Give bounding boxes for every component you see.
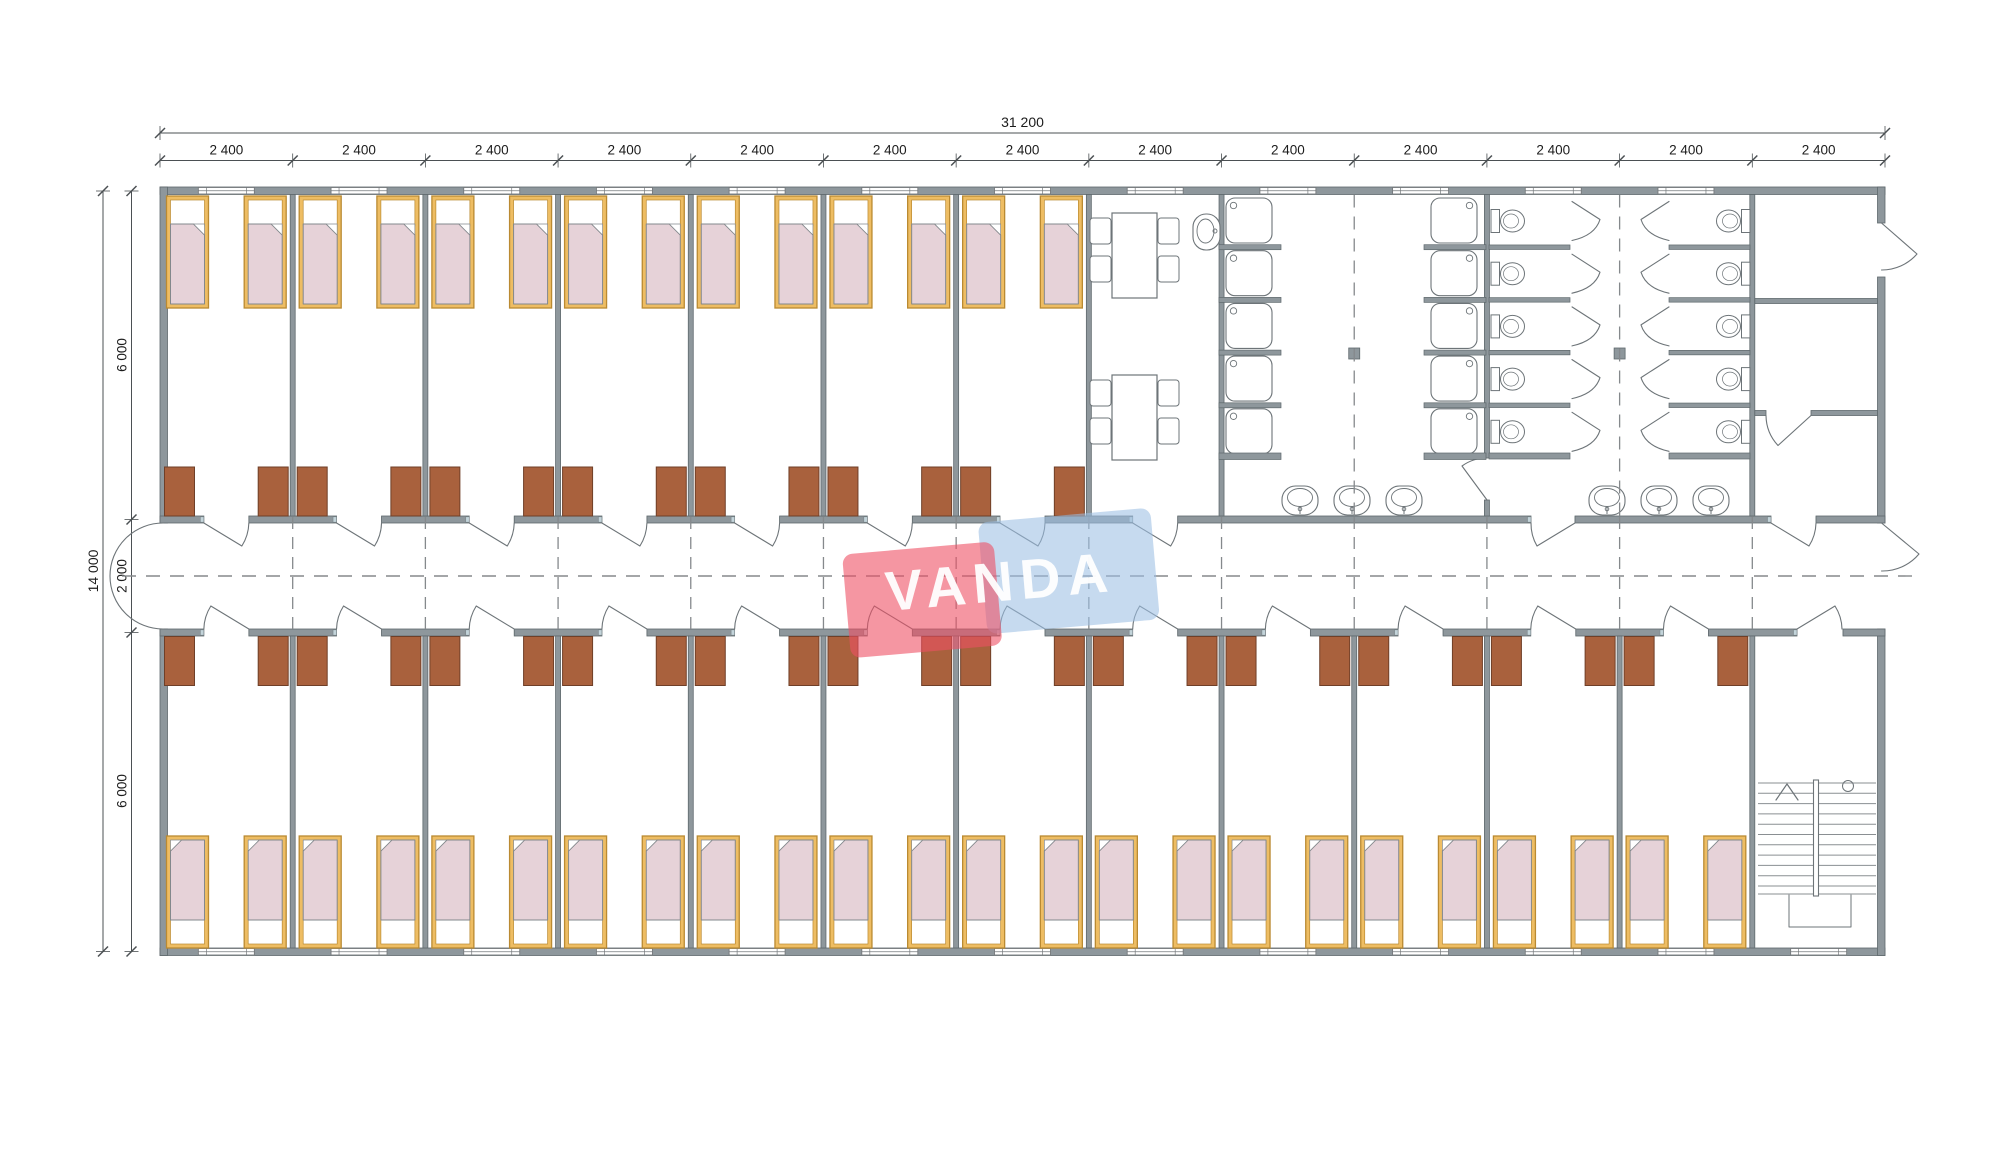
shower-tray [1226, 409, 1272, 454]
shower-partition [1219, 245, 1281, 250]
bed-blanket [436, 224, 470, 304]
wardrobe [563, 637, 593, 686]
door-swing [735, 523, 780, 546]
bed-blanket [514, 224, 548, 304]
bed-blanket [1630, 840, 1664, 920]
bed-pillow [779, 920, 813, 944]
dining-table [1112, 213, 1157, 298]
bed-blanket [646, 224, 680, 304]
toilet-bowl [1717, 210, 1741, 232]
dim-label-module: 2 400 [1138, 143, 1172, 158]
wardrobe [656, 467, 686, 516]
door-jamb [598, 517, 602, 522]
bed-pillow [1044, 200, 1078, 226]
door-jamb [1527, 630, 1531, 635]
bed-pillow [569, 920, 603, 944]
bed-blanket [569, 840, 603, 920]
shower-partition [1424, 403, 1486, 408]
wall-partition-top [423, 195, 428, 517]
bed-pillow [171, 920, 205, 944]
toilet-bowl [1717, 421, 1741, 443]
chair [1158, 218, 1179, 244]
wall-partition-top [688, 195, 693, 517]
toilet-tank [1491, 262, 1500, 285]
bed-blanket [1575, 840, 1609, 920]
wall-corridor [249, 629, 337, 636]
door-jamb [1768, 517, 1772, 522]
shower-partition [1424, 245, 1486, 250]
dim-label-top-band: 6 000 [115, 338, 130, 372]
door-jamb [1395, 630, 1399, 635]
bed-blanket [1232, 840, 1266, 920]
wall-exterior-right [1878, 277, 1886, 523]
toilet-bowl [1501, 421, 1525, 443]
bed-pillow [1575, 920, 1609, 944]
wardrobe [1359, 637, 1389, 686]
shower-tray [1226, 356, 1272, 401]
door-swing [1766, 416, 1811, 446]
door-jamb [731, 630, 735, 635]
stall-partition [1669, 453, 1750, 459]
bed-blanket [912, 840, 946, 920]
stall-partition [1489, 298, 1570, 303]
wall-partition-bottom [1750, 636, 1755, 948]
chair [1090, 380, 1111, 406]
wall-corridor [1178, 629, 1266, 636]
bed-pillow [967, 200, 1001, 226]
chair [1158, 418, 1179, 444]
wall-partition-bottom [954, 636, 959, 948]
bed-pillow [381, 200, 415, 226]
wardrobe [1054, 637, 1084, 686]
toilet-tank [1742, 420, 1751, 443]
stair-handrail-post [1843, 781, 1854, 792]
bed-blanket [779, 840, 813, 920]
shower-tray [1431, 198, 1477, 243]
wardrobe [297, 637, 327, 686]
wardrobe [258, 637, 288, 686]
bed-blanket [1044, 840, 1078, 920]
wardrobe [695, 467, 725, 516]
wall-partition-top [954, 195, 959, 517]
bed-pillow [1708, 920, 1742, 944]
shower-partition [1424, 453, 1486, 460]
wall-corridor [647, 629, 735, 636]
door-jamb [1794, 630, 1798, 635]
bed-pillow [912, 920, 946, 944]
bed-blanket [1177, 840, 1211, 920]
stall-door-swing [1572, 412, 1600, 451]
wardrobe [1320, 637, 1350, 686]
bed-blanket [248, 224, 282, 304]
bed-pillow [646, 920, 680, 944]
wardrobe [1452, 637, 1482, 686]
door-jamb [1129, 630, 1133, 635]
toilet-bowl [1717, 263, 1741, 285]
toilet-tank [1742, 210, 1751, 233]
toilet-bowl [1501, 210, 1525, 232]
wall-corridor [160, 516, 204, 523]
toilet-tank [1491, 420, 1500, 443]
stall-door-swing [1572, 202, 1600, 241]
wall-exterior-right [1878, 629, 1886, 956]
dim-label-module: 2 400 [1536, 143, 1570, 158]
wall-corridor [1843, 629, 1885, 636]
shower-tray [1226, 198, 1272, 243]
wall-partition-bottom [1352, 636, 1357, 948]
wardrobe [391, 637, 421, 686]
shower-tray [1431, 356, 1477, 401]
door-jamb [333, 630, 337, 635]
stall-door-swing [1572, 254, 1600, 293]
bed-pillow [779, 200, 813, 226]
wall-partition-bottom [1086, 636, 1091, 948]
wardrobe [828, 467, 858, 516]
bed-blanket [1365, 840, 1399, 920]
chair [1158, 380, 1179, 406]
wardrobe [1624, 637, 1654, 686]
door-swing [1398, 606, 1443, 629]
wardrobe [1187, 637, 1217, 686]
bed-pillow [303, 200, 337, 226]
bed-pillow [303, 920, 337, 944]
stall-partition [1669, 350, 1750, 355]
shower-tray [1431, 303, 1477, 348]
stall-door-swing [1641, 202, 1669, 241]
chair [1090, 418, 1111, 444]
stair-handrail [1814, 780, 1819, 896]
wall-corridor [1575, 516, 1771, 523]
toilet-tank [1491, 368, 1500, 391]
bed-blanket [834, 840, 868, 920]
wall-partition-top [821, 195, 826, 517]
wall-partition-top [290, 195, 295, 517]
wall-room-divider [1755, 411, 1766, 416]
wall-partition-bottom [556, 636, 561, 948]
wardrobe [430, 637, 460, 686]
bed-pillow [701, 920, 735, 944]
wall-corridor [1443, 629, 1531, 636]
wardrobe [1718, 637, 1748, 686]
stall-door-swing [1572, 307, 1600, 346]
bed-blanket [967, 224, 1001, 304]
wall-partition-bottom [1484, 636, 1489, 948]
bed-blanket [1310, 840, 1344, 920]
shower-partition [1424, 297, 1486, 302]
door-jamb [200, 517, 204, 522]
wall-corridor [514, 629, 602, 636]
shower-partition [1219, 453, 1281, 460]
bed-blanket [1099, 840, 1133, 920]
stall-door-swing [1641, 412, 1669, 451]
door-swing [1462, 458, 1487, 500]
door-swing [1771, 523, 1816, 546]
toilet-bowl [1501, 315, 1525, 337]
door-jamb [1262, 630, 1266, 635]
wall-corridor [1816, 516, 1885, 523]
bed-blanket [834, 224, 868, 304]
wall-partition-bottom [290, 636, 295, 948]
door-swing [602, 523, 647, 546]
wardrobe [165, 467, 195, 516]
bed-pillow [646, 200, 680, 226]
chair [1090, 256, 1111, 282]
bed-blanket [779, 224, 813, 304]
shower-partition [1219, 350, 1281, 355]
bed-pillow [171, 200, 205, 226]
stall-partition [1669, 298, 1750, 303]
bed-blanket [967, 840, 1001, 920]
wardrobe [1585, 637, 1615, 686]
door-jamb [466, 517, 470, 522]
toilet-bowl [1717, 315, 1741, 337]
dim-label-module: 2 400 [1802, 143, 1836, 158]
wall-partition-bottom [1219, 636, 1224, 948]
toilet-tank [1742, 368, 1751, 391]
wardrobe [297, 467, 327, 516]
door-swing [602, 606, 647, 629]
bed-blanket [912, 224, 946, 304]
dim-label-total-height: 14 000 [85, 549, 101, 592]
toilet-bowl [1501, 368, 1525, 390]
wardrobe [656, 637, 686, 686]
dim-label-module: 2 400 [475, 143, 509, 158]
stair-lower-flight-outline [1789, 895, 1851, 927]
stall-partition [1489, 403, 1570, 408]
bed-blanket [1497, 840, 1531, 920]
bed-pillow [834, 920, 868, 944]
bed-pillow [1177, 920, 1211, 944]
wardrobe [695, 637, 725, 686]
wardrobe [922, 467, 952, 516]
bed-pillow [514, 200, 548, 226]
bed-pillow [701, 200, 735, 226]
bed-blanket [303, 840, 337, 920]
door-jamb [864, 517, 868, 522]
floorplan-canvas: 31 2002 4002 4002 4002 4002 4002 4002 40… [0, 0, 2000, 1164]
chair [1158, 256, 1179, 282]
door-swing [204, 523, 249, 546]
door-swing [1663, 606, 1708, 629]
bed-pillow [1365, 920, 1399, 944]
wall-room-divider [1755, 299, 1878, 304]
bed-blanket [171, 224, 205, 304]
wardrobe [165, 637, 195, 686]
toilet-bowl [1501, 263, 1525, 285]
shower-tray [1431, 409, 1477, 454]
bed-blanket [381, 840, 415, 920]
bed-pillow [967, 920, 1001, 944]
door-swing [337, 606, 382, 629]
dim-label-module: 2 400 [342, 143, 376, 158]
wardrobe [1093, 637, 1123, 686]
wall-corridor [382, 629, 470, 636]
dining-table [1112, 375, 1157, 460]
bed-pillow [1232, 920, 1266, 944]
wall-exterior-right [1878, 187, 1886, 223]
bed-blanket [381, 224, 415, 304]
door-jamb [333, 517, 337, 522]
wall-partition-top [556, 195, 561, 517]
bed-pillow [436, 920, 470, 944]
bed-blanket [303, 224, 337, 304]
wardrobe [524, 467, 554, 516]
wardrobe [1491, 637, 1521, 686]
bed-pillow [381, 920, 415, 944]
bed-pillow [248, 920, 282, 944]
stall-partition [1489, 350, 1570, 355]
wardrobe [1226, 637, 1256, 686]
bed-pillow [569, 200, 603, 226]
door-swing [1797, 606, 1842, 629]
bed-blanket [1442, 840, 1476, 920]
bed-pillow [248, 200, 282, 226]
bed-blanket [701, 224, 735, 304]
door-swing [469, 606, 514, 629]
wall-partition-bottom [688, 636, 693, 948]
door-swing [735, 606, 780, 629]
wall-partition-top [1750, 195, 1755, 517]
door-jamb [731, 517, 735, 522]
wardrobe [430, 467, 460, 516]
stall-partition [1489, 453, 1570, 459]
shower-partition [1219, 403, 1281, 408]
door-swing [1882, 523, 1920, 571]
door-jamb [1528, 517, 1532, 522]
wardrobe [563, 467, 593, 516]
wall-corridor [1045, 629, 1133, 636]
toilet-tank [1742, 315, 1751, 338]
door-swing [1882, 223, 1918, 270]
bed-blanket [569, 224, 603, 304]
door-swing [1531, 606, 1576, 629]
dim-label-module: 2 400 [873, 143, 907, 158]
wardrobe [258, 467, 288, 516]
bed-blanket [248, 840, 282, 920]
stair-direction-arrow [1776, 784, 1798, 800]
door-jamb [200, 630, 204, 635]
wardrobe [1054, 467, 1084, 516]
bed-pillow [834, 200, 868, 226]
bed-blanket [436, 840, 470, 920]
bed-blanket [1708, 840, 1742, 920]
wardrobe [961, 467, 991, 516]
stall-door-swing [1641, 254, 1669, 293]
floorplan-drawing: 31 2002 4002 4002 4002 4002 4002 4002 40… [0, 0, 2000, 1164]
bed-blanket [701, 840, 735, 920]
shower-tray [1226, 303, 1272, 348]
bed-pillow [514, 920, 548, 944]
stall-door-swing [1572, 360, 1600, 399]
bed-pillow [1497, 920, 1531, 944]
wall-partition-top [1484, 500, 1489, 516]
bed-blanket [646, 840, 680, 920]
door-swing [204, 606, 249, 629]
dim-label-module: 2 400 [1006, 143, 1040, 158]
stall-door-swing [1641, 360, 1669, 399]
bed-pillow [1442, 920, 1476, 944]
toilet-tank [1742, 262, 1751, 285]
shower-partition [1424, 350, 1486, 355]
bed-pillow [436, 200, 470, 226]
wall-corridor [160, 629, 204, 636]
stall-partition [1489, 245, 1570, 250]
dim-label-bottom-band: 6 000 [115, 774, 130, 808]
bed-pillow [1099, 920, 1133, 944]
door-swing [337, 523, 382, 546]
door-swing [469, 523, 514, 546]
door-jamb [466, 630, 470, 635]
bed-blanket [171, 840, 205, 920]
wardrobe [789, 467, 819, 516]
wall-partition-bottom [1617, 636, 1622, 948]
chair [1090, 218, 1111, 244]
stall-partition [1669, 403, 1750, 408]
bed-pillow [912, 200, 946, 226]
shower-tray [1431, 251, 1477, 296]
shower-tray [1226, 251, 1272, 296]
door-swing [1531, 523, 1575, 546]
bed-pillow [1630, 920, 1664, 944]
bed-pillow [1044, 920, 1078, 944]
wall-corridor [1708, 629, 1797, 636]
wall-partition-top [1484, 195, 1489, 459]
toilet-bowl [1717, 368, 1741, 390]
door-jamb [598, 630, 602, 635]
dim-label-module: 2 400 [209, 143, 243, 158]
wardrobe [524, 637, 554, 686]
shower-partition [1219, 297, 1281, 302]
dim-label-module: 2 400 [608, 143, 642, 158]
dim-label-total-width: 31 200 [1001, 114, 1044, 130]
wall-partition-bottom [821, 636, 826, 948]
stall-partition [1669, 245, 1750, 250]
door-swing [1265, 606, 1310, 629]
stall-door-swing [1641, 307, 1669, 346]
bed-pillow [1310, 920, 1344, 944]
dim-label-module: 2 400 [1404, 143, 1438, 158]
dim-label-module: 2 400 [1271, 143, 1305, 158]
toilet-tank [1491, 210, 1500, 233]
wardrobe [789, 637, 819, 686]
door-swing [867, 523, 912, 546]
door-jamb [1660, 630, 1664, 635]
wall-room-divider [1811, 411, 1878, 416]
bed-blanket [514, 840, 548, 920]
wardrobe [391, 467, 421, 516]
wall-corridor [1576, 629, 1664, 636]
dim-label-module: 2 400 [740, 143, 774, 158]
dim-label-module: 2 400 [1669, 143, 1703, 158]
wall-partition-bottom [423, 636, 428, 948]
bed-blanket [1044, 224, 1078, 304]
wall-corridor [1310, 629, 1398, 636]
toilet-tank [1491, 315, 1500, 338]
